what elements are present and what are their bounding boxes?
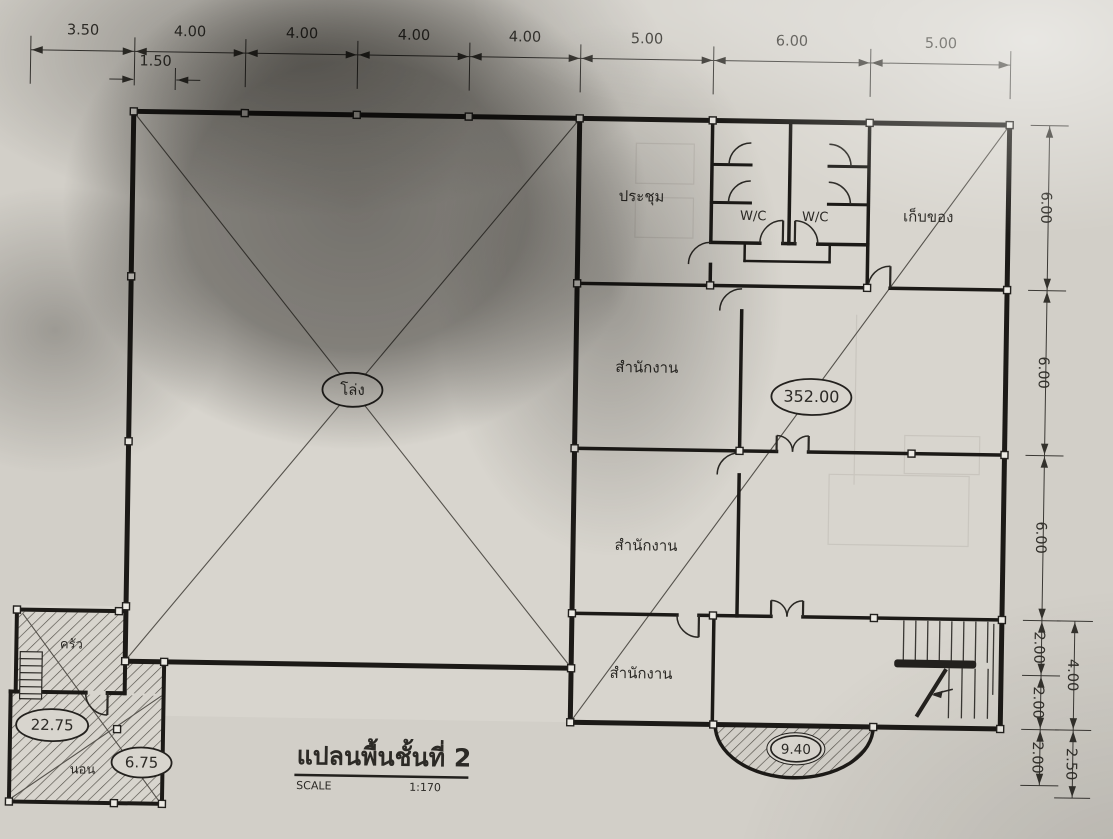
meeting-room-label: ประชุม bbox=[619, 187, 665, 207]
dim-top-2: 4.00 bbox=[174, 24, 207, 41]
dim-top-5: 4.00 bbox=[509, 29, 542, 46]
scale-label: SCALE bbox=[296, 779, 332, 793]
dim-right-4: 2.00 bbox=[1030, 631, 1047, 664]
dim-right-outer-1: 4.00 bbox=[1064, 659, 1081, 692]
hall-oval: โล่ง bbox=[322, 372, 383, 407]
dim-top-6: 5.00 bbox=[631, 31, 664, 48]
annex-small-area-oval: 6.75 bbox=[111, 747, 171, 778]
notch-hatch bbox=[125, 661, 164, 694]
dim-right-5: 2.00 bbox=[1029, 686, 1046, 719]
office-top-label: สำนักงาน bbox=[615, 358, 678, 377]
dim-right-outer-2: 2.50 bbox=[1062, 748, 1079, 781]
dim-top-sub: 1.50 bbox=[139, 53, 172, 70]
dim-top-1: 3.50 bbox=[67, 22, 100, 39]
hall-label: โล่ง bbox=[340, 381, 365, 399]
scale-value: 1:170 bbox=[409, 781, 441, 794]
office-middle-label: สำนักงาน bbox=[614, 536, 677, 555]
annex-area-oval: 22.75 bbox=[16, 709, 88, 742]
balcony-area-label: 9.40 bbox=[781, 742, 811, 758]
total-area-label: 352.00 bbox=[783, 387, 839, 407]
office-bottom-label: สำนักงาน bbox=[609, 664, 672, 683]
kitchen-ladder bbox=[20, 652, 43, 699]
dim-right-1: 6.00 bbox=[1037, 191, 1054, 224]
dim-right-6: 2.00 bbox=[1029, 741, 1046, 774]
annex-area-label: 22.75 bbox=[31, 716, 74, 735]
annex-small-area-label: 6.75 bbox=[125, 753, 159, 772]
floor-plan-drawing: 3.50 4.00 4.00 4.00 4.00 5.00 6.00 5.00 … bbox=[0, 0, 1113, 839]
dim-right-2: 6.00 bbox=[1035, 356, 1052, 389]
storage-label: เก็บของ bbox=[903, 206, 954, 226]
kitchen-label: ครัว bbox=[60, 637, 83, 652]
stair-landing-rail bbox=[894, 659, 976, 668]
floor-plan-photo: 3.50 4.00 4.00 4.00 4.00 5.00 6.00 5.00 … bbox=[0, 0, 1113, 839]
dim-top-7: 6.00 bbox=[776, 33, 809, 50]
wc-right-label: W/C bbox=[802, 210, 829, 225]
total-area-oval: 352.00 bbox=[771, 378, 852, 415]
bedroom-label: นอน bbox=[70, 762, 96, 777]
wc-left-label: W/C bbox=[740, 209, 767, 224]
dim-top-8: 5.00 bbox=[925, 36, 958, 53]
balcony-area-oval: 9.40 bbox=[767, 732, 825, 765]
dim-right-3: 6.00 bbox=[1032, 521, 1049, 554]
dim-top-3: 4.00 bbox=[286, 26, 319, 43]
dim-top-4: 4.00 bbox=[398, 27, 431, 44]
